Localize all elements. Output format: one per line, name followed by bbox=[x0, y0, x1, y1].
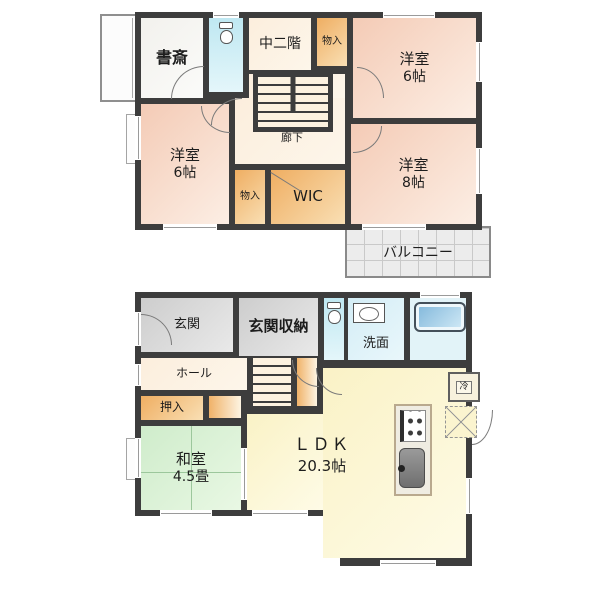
washitsu-size: 4.5畳 bbox=[173, 469, 209, 485]
sink-basin bbox=[359, 307, 379, 321]
room-hall: ホール bbox=[141, 358, 247, 390]
window bbox=[420, 292, 460, 298]
entrance-storage-label: 玄関収納 bbox=[248, 318, 308, 335]
refrigerator-label: 冷 bbox=[456, 381, 471, 394]
room-closet-mid: 物入 bbox=[235, 170, 265, 224]
small-closet bbox=[209, 396, 241, 418]
window bbox=[466, 478, 472, 514]
bathtub-icon bbox=[414, 302, 466, 332]
window bbox=[362, 224, 426, 230]
bedroom-name: 洋室 bbox=[170, 147, 200, 164]
bedroom-name: 洋室 bbox=[398, 157, 428, 174]
window bbox=[252, 510, 308, 516]
window bbox=[135, 116, 141, 160]
bedroom-name: 洋室 bbox=[399, 51, 429, 68]
window bbox=[213, 12, 239, 18]
toilet-icon bbox=[219, 22, 233, 44]
stairs-2f bbox=[253, 72, 333, 132]
closet-top-label: 物入 bbox=[322, 36, 342, 48]
bedroom-size: 8帖 bbox=[402, 175, 425, 191]
sliding-door-gap bbox=[241, 448, 247, 500]
oshiire-label: 押入 bbox=[160, 401, 184, 415]
bedroom-size: 6帖 bbox=[174, 165, 197, 181]
window bbox=[135, 364, 141, 386]
stairs-divider bbox=[291, 77, 296, 113]
window bbox=[383, 12, 435, 18]
room-closet-top: 物入 bbox=[317, 18, 347, 66]
ldk-name: ＬＤＫ bbox=[257, 430, 387, 455]
entrance-label: 玄関 bbox=[174, 318, 200, 333]
study-label: 書斎 bbox=[156, 49, 188, 67]
floorplan-canvas: バルコニー 書斎 中二階 物入 洋室 6帖 廊下 洋室 6帖 物入 WIC 洋室… bbox=[0, 0, 600, 600]
washroom-label: 洗面 bbox=[363, 337, 389, 352]
stairs-1f bbox=[253, 358, 296, 406]
room-washitsu: 和室 4.5畳 bbox=[141, 426, 241, 510]
door-arc bbox=[472, 410, 493, 445]
refrigerator-icon: 冷 bbox=[448, 372, 480, 402]
window bbox=[380, 560, 436, 566]
ldk-label-group: ＬＤＫ 20.3帖 bbox=[257, 430, 387, 476]
mezzanine-label: 中二階 bbox=[259, 36, 301, 52]
room-bedroom-top-right: 洋室 6帖 bbox=[353, 18, 476, 118]
balcony-label: バルコニー bbox=[383, 242, 453, 262]
toilet-icon bbox=[327, 302, 341, 324]
hallway-label: 廊下 bbox=[262, 129, 322, 145]
balcony: バルコニー bbox=[345, 226, 491, 278]
faucet-icon bbox=[398, 465, 405, 472]
room-entrance-storage: 玄関収納 bbox=[239, 298, 318, 356]
ldk-size: 20.3帖 bbox=[257, 455, 387, 476]
window bbox=[163, 224, 217, 230]
window bbox=[135, 438, 141, 478]
stove-icon bbox=[400, 410, 426, 442]
hall-label: ホール bbox=[176, 367, 212, 381]
room-mezzanine: 中二階 bbox=[249, 18, 311, 70]
bedroom-size: 6帖 bbox=[403, 69, 426, 85]
room-oshiire: 押入 bbox=[141, 396, 203, 420]
closet-mid-label: 物入 bbox=[240, 191, 260, 203]
washitsu-name: 和室 bbox=[176, 451, 206, 468]
wic-label: WIC bbox=[293, 188, 323, 205]
window bbox=[476, 42, 482, 82]
sink-icon bbox=[353, 303, 385, 323]
kitchen-sink-icon bbox=[399, 448, 425, 488]
window bbox=[160, 510, 212, 516]
window bbox=[476, 148, 482, 194]
